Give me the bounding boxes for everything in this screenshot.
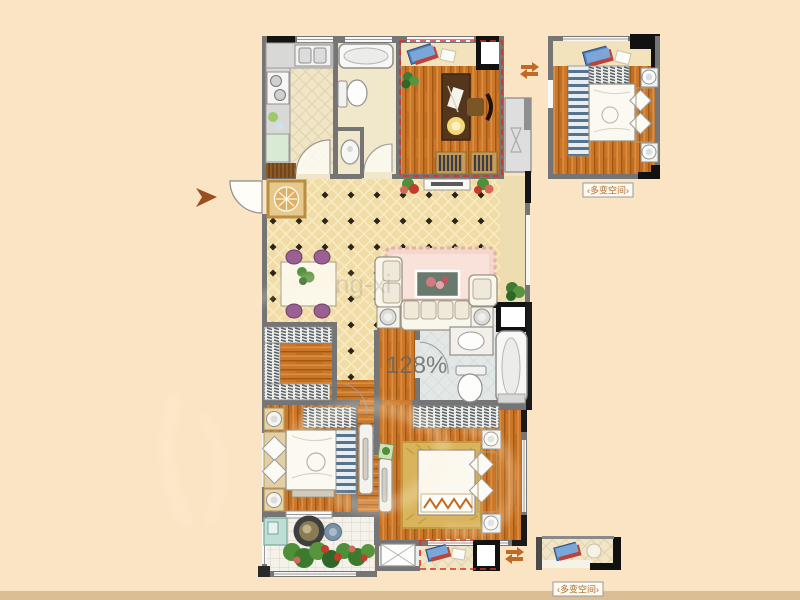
svg-text:ng-xi: ng-xi — [335, 269, 391, 299]
svg-text:128%: 128% — [386, 352, 447, 379]
svg-text:‹多变空间›: ‹多变空间› — [587, 185, 629, 196]
svg-text:‹多变空间›: ‹多变空间› — [557, 584, 599, 595]
